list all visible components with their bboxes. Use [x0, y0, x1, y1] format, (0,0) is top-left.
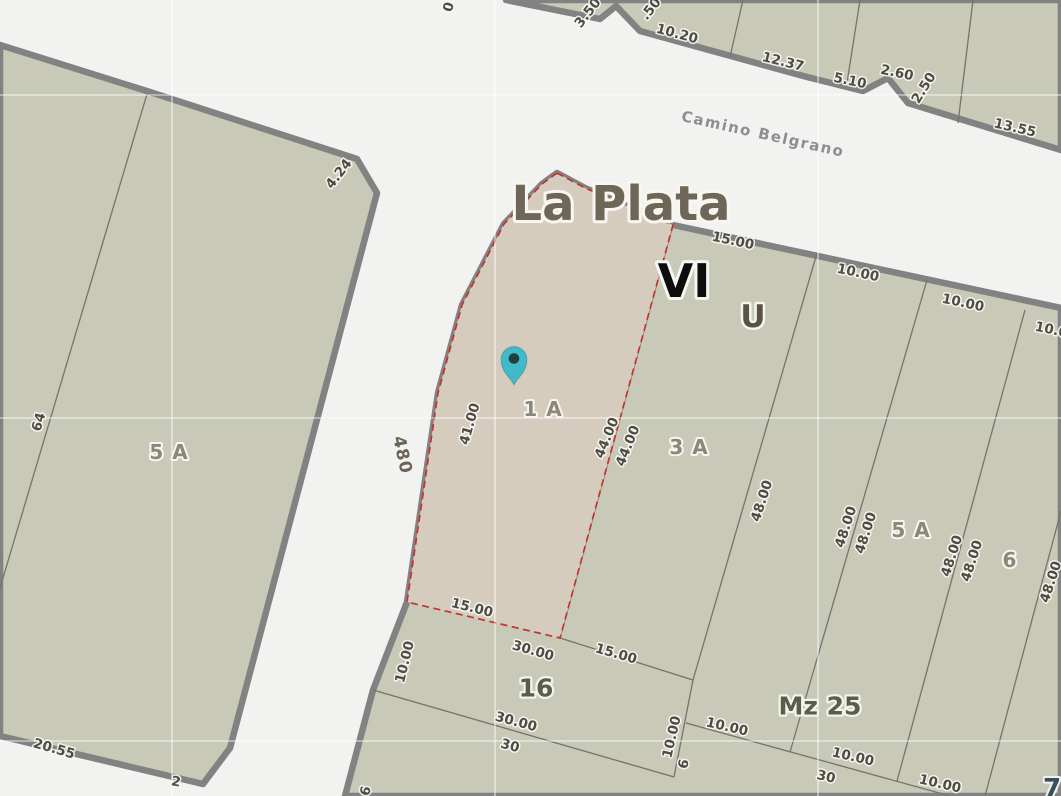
parcel-label-1a: 1 A — [523, 397, 562, 421]
parcel-label-5a-left: 5 A — [149, 440, 188, 464]
parcel-label-6: 6 — [1003, 548, 1018, 572]
district-label-partial: 7 — [1043, 774, 1061, 796]
city-label: La Plata — [511, 176, 730, 232]
pin-dot — [509, 353, 520, 364]
map-canvas[interactable]: 03.50.5010.2012.375.102.602.5013.554.241… — [0, 0, 1061, 796]
parcel-label-3a: 3 A — [669, 435, 708, 459]
block-label-mz25: Mz 25 — [779, 692, 862, 721]
cadastral-map-viewer: 03.50.5010.2012.375.102.602.5013.554.241… — [0, 0, 1061, 796]
landuse-label: U — [740, 299, 765, 335]
parcel-label-16: 16 — [519, 674, 554, 703]
parcel-label-5a-right: 5 A — [891, 518, 930, 542]
zone-label: VI — [658, 254, 711, 308]
